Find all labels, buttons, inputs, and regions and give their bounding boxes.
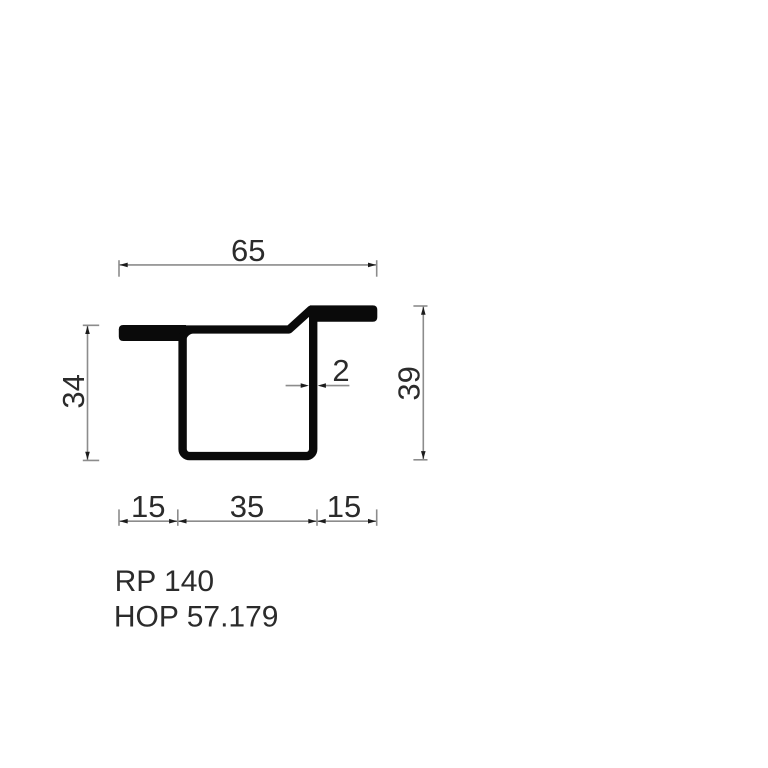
svg-text:34: 34 [56, 374, 91, 408]
svg-text:65: 65 [231, 233, 265, 268]
svg-text:15: 15 [327, 489, 361, 524]
svg-text:35: 35 [230, 489, 264, 524]
svg-text:2: 2 [332, 353, 349, 388]
svg-text:39: 39 [391, 366, 426, 400]
svg-text:15: 15 [131, 489, 165, 524]
svg-text:HOP 57.179: HOP 57.179 [114, 601, 279, 634]
svg-text:RP 140: RP 140 [115, 565, 215, 598]
